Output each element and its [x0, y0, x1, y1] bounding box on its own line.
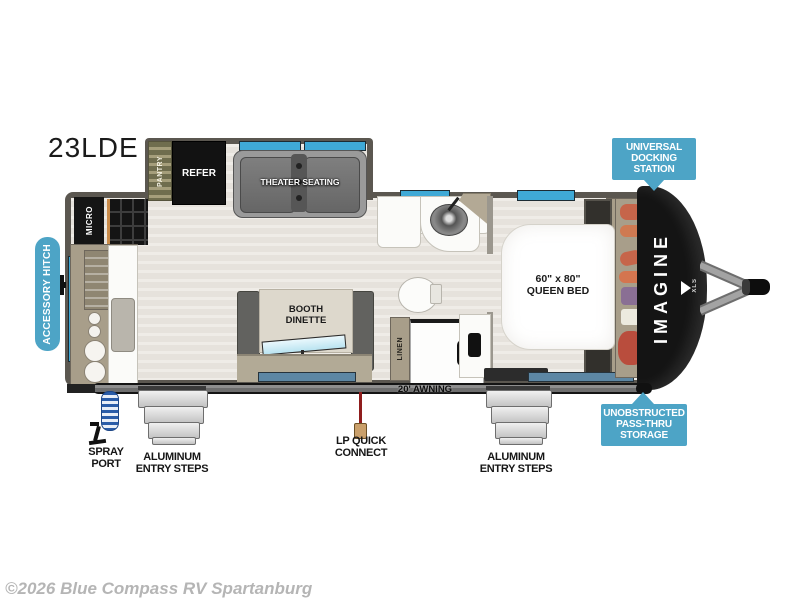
theater-seating-label: THEATER SEATING [234, 177, 366, 187]
accessory-hitch-callout-label: ACCESSORY HITCH [42, 244, 53, 345]
sink-bowl [84, 361, 106, 383]
dinette-label-line1: BOOTH [260, 304, 352, 315]
dinette-bottom-window [258, 372, 356, 382]
awning-label: 20' AWNING [383, 384, 467, 395]
dinette-label-line2: DINETTE [260, 315, 352, 326]
lp-line-icon [359, 392, 362, 425]
docking-station-callout: UNIVERSAL DOCKING STATION [612, 138, 696, 180]
step-tread [152, 437, 196, 445]
pantry-label: PANTRY [157, 156, 164, 187]
queen-bed: 60" x 80" QUEEN BED [501, 224, 615, 350]
bedroom-window [517, 190, 575, 201]
step-tread [499, 437, 543, 445]
refrigerator: REFER [172, 141, 226, 205]
pantry: PANTRY [148, 141, 172, 201]
bed-label-line2: QUEEN BED [502, 285, 614, 297]
utensil-drawer [84, 250, 110, 310]
sink-bowl [84, 340, 106, 362]
brand-arrow-icon [681, 281, 691, 295]
microwave-label: MICRO [85, 206, 94, 235]
linen-closet: LINEN [390, 317, 410, 381]
small-sink-bowl [88, 312, 101, 325]
cupholder-icon [296, 195, 302, 201]
pass-thru-callout-pointer [632, 392, 654, 404]
entry-steps-right-label: ALUMINUM ENTRY STEPS [466, 452, 566, 476]
small-sink-bowl [88, 325, 101, 338]
hitch-a-frame [700, 252, 772, 324]
model-number: 23LDE [48, 132, 139, 164]
copyright-text: ©2026 Blue Compass RV Spartanburg [5, 579, 312, 599]
floorplan-canvas: 23LDE MICRO PANTRY REFER THEATER SEATING [0, 0, 800, 600]
bath-vanity-wing [377, 196, 421, 248]
entry-steps-left-label: ALUMINUM ENTRY STEPS [122, 452, 222, 476]
cupholder-icon [296, 163, 302, 169]
sink-cover [111, 298, 135, 352]
lp-quick-connect-label: LP QUICK CONNECT [311, 436, 411, 460]
front-cap: IMAGINE XLS [637, 186, 707, 390]
brand-wordmark: IMAGINE [651, 186, 677, 390]
pass-thru-callout: UNOBSTRUCTED PASS-THRU STORAGE [601, 404, 687, 446]
rear-bumper [67, 384, 95, 393]
bath-bedroom-wall-upper [487, 196, 493, 254]
brand-sub-label: XLS [692, 278, 698, 293]
refrigerator-label: REFER [182, 168, 216, 179]
hanging-clothes-icon [468, 333, 481, 357]
spray-nozzle-icon [89, 439, 106, 445]
spray-nozzle-icon [90, 422, 99, 426]
theater-seating: THEATER SEATING [233, 150, 367, 218]
accessory-hitch-callout: ACCESSORY HITCH [35, 237, 60, 351]
bed-label-line1: 60" x 80" [502, 273, 614, 285]
microwave: MICRO [74, 197, 104, 245]
docking-station-callout-pointer [643, 179, 665, 191]
spray-port-hose-icon [101, 391, 119, 431]
stove-cooktop [107, 199, 148, 245]
linen-label: LINEN [397, 337, 404, 361]
toilet-tank [430, 284, 442, 304]
